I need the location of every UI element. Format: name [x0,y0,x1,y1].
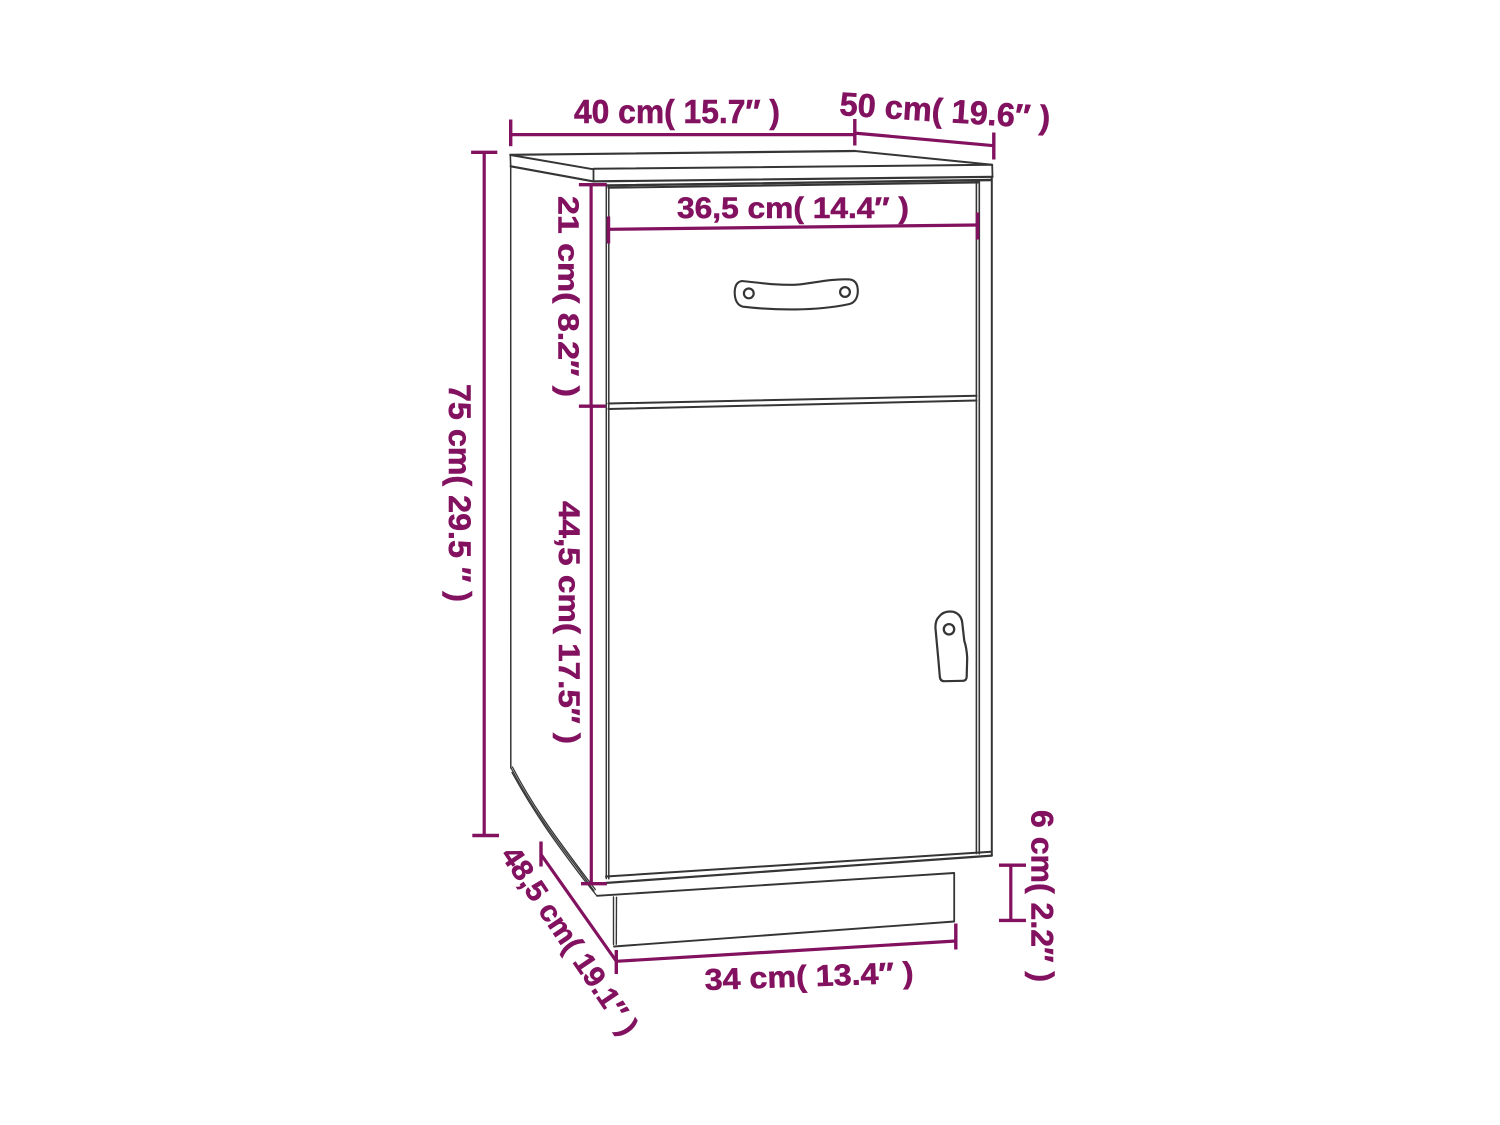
svg-text:75 cm( 29.5 ″ ): 75 cm( 29.5 ″ ) [442,384,478,602]
svg-text:44,5 cm( 17.5″ ): 44,5 cm( 17.5″ ) [552,501,585,744]
svg-text:40 cm( 15.7″ ): 40 cm( 15.7″ ) [574,93,780,130]
svg-text:6 cm( 2.2″ ): 6 cm( 2.2″ ) [1025,810,1061,982]
svg-text:21 cm( 8.2″ ): 21 cm( 8.2″ ) [552,196,584,397]
svg-text:36,5 cm( 14.4″ ): 36,5 cm( 14.4″ ) [677,192,909,225]
